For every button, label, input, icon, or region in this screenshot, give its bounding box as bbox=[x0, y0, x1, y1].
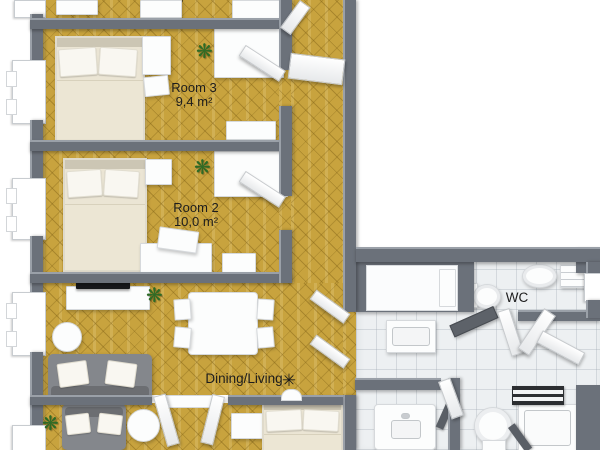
room2-area-label: 10,0 m² bbox=[150, 214, 242, 229]
armchair-pillow bbox=[97, 413, 123, 436]
wc-sink bbox=[522, 264, 557, 288]
window bbox=[12, 60, 46, 124]
wall-corner bbox=[576, 385, 600, 450]
wall bbox=[30, 18, 279, 29]
wall bbox=[30, 140, 292, 151]
duvet bbox=[57, 80, 143, 140]
wall bbox=[343, 0, 356, 312]
wall bbox=[30, 272, 292, 283]
wall bbox=[30, 236, 43, 294]
plant-icon: ❋ bbox=[194, 158, 211, 178]
room2-name-label: Room 2 bbox=[150, 200, 242, 215]
duvet bbox=[65, 204, 145, 270]
wall bbox=[279, 230, 292, 283]
room3-name-label: Room 3 bbox=[148, 80, 240, 95]
light-symbol: ✳ bbox=[279, 371, 299, 391]
hall-cabinet bbox=[386, 320, 436, 353]
desk bbox=[142, 36, 171, 75]
window bbox=[12, 178, 46, 240]
sofa-pillow bbox=[56, 360, 89, 388]
toilet-cistern bbox=[482, 440, 506, 450]
cabinet bbox=[222, 253, 256, 273]
nightstand bbox=[145, 159, 172, 185]
duvet bbox=[264, 434, 341, 450]
pillow bbox=[98, 47, 138, 78]
plant-icon: ❋ bbox=[146, 286, 163, 306]
window-sill bbox=[6, 331, 17, 347]
wall bbox=[30, 395, 152, 405]
wall bbox=[355, 378, 441, 390]
bathtub-basin bbox=[524, 410, 571, 446]
cabinet-partial bbox=[232, 0, 286, 19]
closet-interior bbox=[366, 265, 458, 311]
room3-area-label: 9,4 m² bbox=[148, 94, 240, 109]
wc-label: WC bbox=[495, 290, 539, 305]
armchair-pillow bbox=[65, 413, 91, 436]
window-sill bbox=[6, 303, 17, 319]
window-sill bbox=[6, 216, 17, 232]
radiator bbox=[512, 386, 564, 405]
window-sill bbox=[6, 188, 17, 204]
window bbox=[12, 425, 46, 450]
window bbox=[12, 292, 46, 356]
closet-shelf bbox=[439, 269, 456, 307]
pillow bbox=[103, 169, 140, 198]
dining-chair bbox=[173, 298, 191, 320]
floor-plan: 12,0 m² ❋ Room 3 9,4 m² ❋ Room 2 10,0 m²… bbox=[0, 0, 600, 450]
headboard bbox=[57, 38, 143, 47]
wall bbox=[356, 247, 600, 262]
corridor-floor bbox=[291, 0, 343, 283]
pillow bbox=[58, 47, 98, 78]
cabinet-top bbox=[392, 327, 430, 346]
pillow bbox=[302, 409, 339, 432]
bathroom-vanity bbox=[374, 404, 436, 450]
plant-icon: ❋ bbox=[196, 42, 213, 62]
dining-table bbox=[188, 292, 258, 355]
window-sill bbox=[6, 99, 17, 115]
sofa-pillow bbox=[104, 360, 137, 388]
wall bbox=[279, 106, 292, 196]
dining-chair bbox=[173, 326, 192, 348]
wall bbox=[343, 395, 356, 450]
nightstand bbox=[231, 413, 263, 439]
headboard bbox=[65, 160, 145, 169]
coffee-table bbox=[52, 322, 82, 352]
vanity-basin bbox=[391, 420, 421, 439]
furniture-partial bbox=[56, 0, 98, 15]
pillow bbox=[66, 169, 103, 198]
plant-icon: ❋ bbox=[42, 414, 59, 434]
sideboard bbox=[66, 286, 150, 310]
dining-chair bbox=[256, 326, 275, 348]
round-table bbox=[127, 409, 160, 442]
wall bbox=[586, 300, 600, 318]
top-room-area-label: 12,0 m² bbox=[142, 0, 234, 3]
dresser bbox=[226, 121, 276, 140]
dining-chair bbox=[256, 298, 274, 320]
pillow bbox=[265, 409, 302, 432]
window bbox=[584, 273, 600, 302]
window-sill bbox=[6, 71, 17, 87]
vanity-faucet bbox=[401, 413, 410, 419]
